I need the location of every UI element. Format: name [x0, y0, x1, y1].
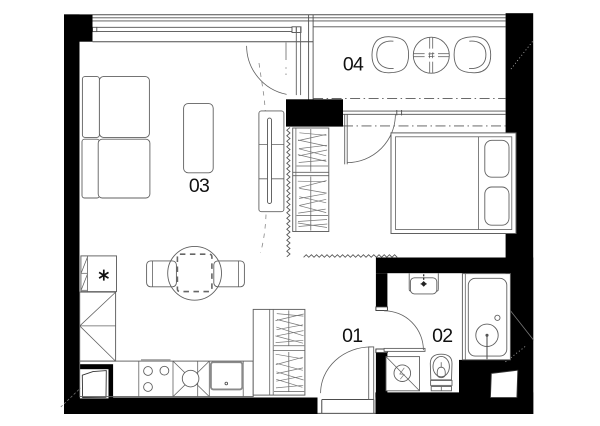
svg-text:01: 01: [342, 325, 362, 347]
svg-text:02: 02: [432, 325, 452, 347]
svg-text:03: 03: [189, 175, 209, 197]
svg-text:04: 04: [343, 54, 364, 76]
